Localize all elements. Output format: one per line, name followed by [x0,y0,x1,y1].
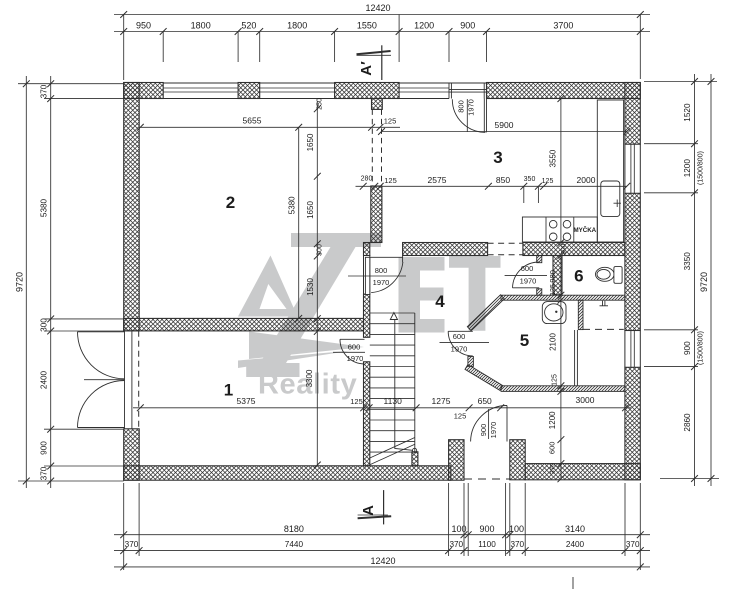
svg-text:900: 900 [40,441,49,455]
svg-text:4: 4 [435,292,445,311]
svg-text:125: 125 [384,117,397,126]
svg-text:125: 125 [542,178,554,185]
svg-text:A′: A′ [358,61,375,76]
svg-text:300: 300 [561,243,568,254]
svg-text:12420: 12420 [370,556,395,566]
svg-text:900: 900 [460,20,475,30]
svg-text:5375: 5375 [237,396,256,406]
svg-text:8180: 8180 [284,524,304,534]
svg-text:1970: 1970 [489,422,498,439]
svg-text:1200: 1200 [548,411,557,429]
svg-text:1800: 1800 [191,20,211,30]
svg-text:5655: 5655 [243,116,262,126]
svg-text:1200: 1200 [414,20,434,30]
svg-text:1530: 1530 [306,278,315,296]
svg-text:3000: 3000 [576,395,595,405]
svg-text:5: 5 [520,331,529,350]
svg-text:2400: 2400 [40,370,49,389]
svg-text:950: 950 [136,20,151,30]
svg-text:520: 520 [241,20,256,30]
svg-text:980: 980 [548,270,557,283]
svg-text:370: 370 [125,540,139,549]
svg-text:9720: 9720 [15,272,25,292]
svg-text:3550: 3550 [549,149,558,167]
svg-text:2575: 2575 [428,175,447,185]
svg-text:5380: 5380 [288,196,297,214]
svg-text:280: 280 [361,176,373,183]
svg-text:2100: 2100 [549,333,558,351]
svg-text:A: A [360,505,377,516]
svg-text:370: 370 [449,540,463,549]
svg-text:370: 370 [550,463,557,474]
svg-text:300: 300 [317,244,324,256]
svg-text:5380: 5380 [40,198,49,217]
svg-text:3: 3 [493,148,502,167]
svg-text:5900: 5900 [495,120,514,130]
svg-text:600: 600 [348,342,361,351]
svg-text:3300: 3300 [305,369,314,387]
svg-text:1650: 1650 [306,133,315,151]
svg-text:600: 600 [548,442,557,455]
svg-text:300: 300 [40,318,49,332]
svg-text:370: 370 [510,540,524,549]
svg-text:800: 800 [375,266,388,275]
svg-text:1970: 1970 [467,99,476,116]
svg-text:1650: 1650 [306,201,315,219]
svg-text:100: 100 [509,524,524,534]
svg-text:1520: 1520 [683,103,692,122]
svg-text:350: 350 [524,176,536,183]
svg-text:850: 850 [496,175,510,185]
svg-text:(1500/800): (1500/800) [698,331,705,365]
svg-text:370: 370 [40,466,49,480]
svg-text:125: 125 [350,397,363,406]
svg-text:(1500/800): (1500/800) [698,151,705,185]
svg-text:12420: 12420 [365,3,390,13]
svg-text:125: 125 [384,176,397,185]
svg-text:1100: 1100 [478,540,496,549]
svg-text:650: 650 [478,396,492,406]
svg-text:9720: 9720 [699,272,709,292]
svg-text:370: 370 [626,540,640,549]
svg-text:1800: 1800 [287,20,307,30]
svg-text:125: 125 [550,284,557,296]
svg-text:800: 800 [457,100,466,113]
svg-text:125: 125 [454,412,467,421]
svg-text:250: 250 [317,98,324,110]
svg-text:900: 900 [479,524,494,534]
svg-text:1970: 1970 [520,277,537,286]
svg-text:1: 1 [224,381,233,400]
svg-text:1275: 1275 [432,396,451,406]
svg-text:1550: 1550 [357,20,377,30]
svg-text:6: 6 [574,267,583,286]
svg-text:2860: 2860 [683,413,692,432]
svg-text:600: 600 [453,332,466,341]
svg-text:2: 2 [226,193,235,212]
svg-text:3350: 3350 [683,252,692,271]
svg-text:1130: 1130 [384,396,403,406]
svg-text:1970: 1970 [373,278,390,287]
svg-text:2400: 2400 [566,540,585,549]
svg-text:1970: 1970 [347,354,364,363]
svg-text:900: 900 [479,424,488,437]
svg-text:1970: 1970 [451,344,468,353]
svg-text:3700: 3700 [553,20,573,30]
svg-text:MYČKA: MYČKA [573,227,596,234]
svg-text:370: 370 [40,84,49,98]
svg-text:125: 125 [552,374,559,386]
svg-text:900: 900 [683,341,692,355]
svg-text:600: 600 [521,264,534,273]
svg-text:7440: 7440 [285,540,304,549]
svg-text:2000: 2000 [577,175,596,185]
svg-text:3140: 3140 [565,524,585,534]
svg-text:1200: 1200 [683,159,692,178]
